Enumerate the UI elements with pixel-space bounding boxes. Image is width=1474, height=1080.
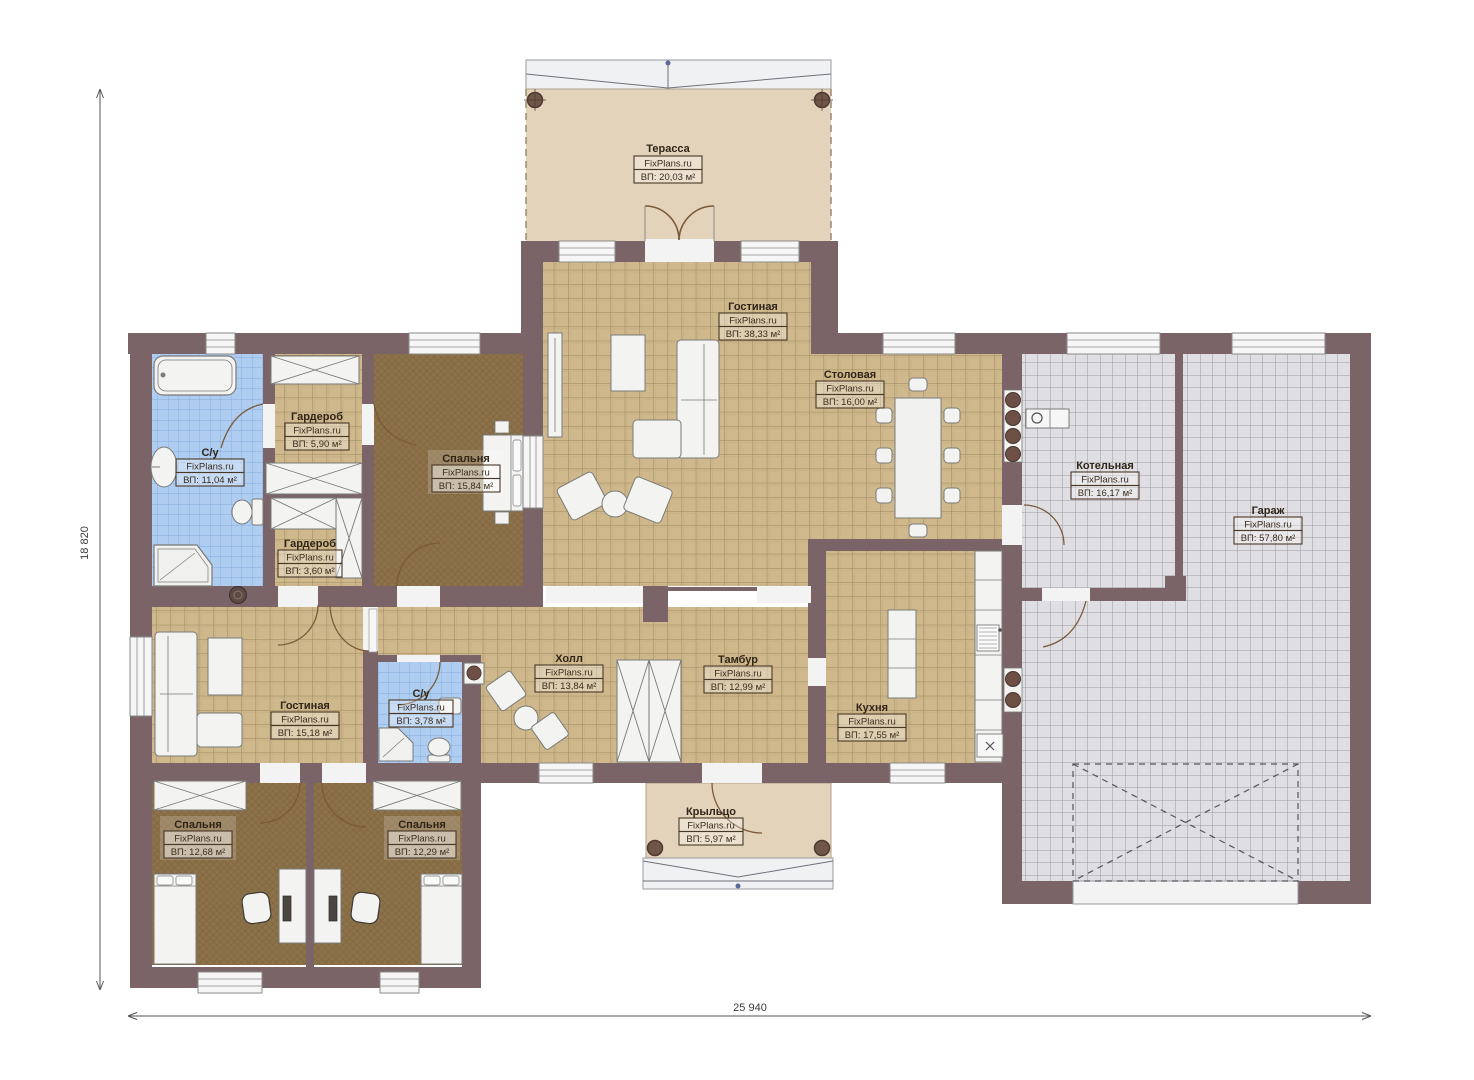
svg-text:Котельная: Котельная <box>1076 460 1134 472</box>
svg-text:FixPlans.ru: FixPlans.ru <box>644 159 692 170</box>
svg-text:ВП: 11,04 м²: ВП: 11,04 м² <box>183 475 237 486</box>
svg-text:FixPlans.ru: FixPlans.ru <box>1081 475 1129 486</box>
svg-text:ВП: 13,84 м²: ВП: 13,84 м² <box>542 681 597 692</box>
svg-text:FixPlans.ru: FixPlans.ru <box>398 834 446 845</box>
svg-text:ВП: 57,80 м²: ВП: 57,80 м² <box>1241 533 1296 544</box>
svg-text:Крыльцо: Крыльцо <box>686 806 736 818</box>
svg-text:FixPlans.ru: FixPlans.ru <box>397 703 445 714</box>
svg-text:ВП: 5,97 м²: ВП: 5,97 м² <box>686 834 735 845</box>
svg-text:Терасса: Терасса <box>646 143 690 155</box>
svg-text:25 940: 25 940 <box>733 1002 767 1014</box>
svg-text:Спальня: Спальня <box>174 819 222 831</box>
svg-text:18 820: 18 820 <box>79 526 91 560</box>
svg-text:FixPlans.ru: FixPlans.ru <box>545 668 593 679</box>
svg-text:FixPlans.ru: FixPlans.ru <box>729 316 777 327</box>
svg-text:Спальня: Спальня <box>398 819 446 831</box>
svg-text:FixPlans.ru: FixPlans.ru <box>293 426 341 437</box>
svg-text:ВП: 3,60 м²: ВП: 3,60 м² <box>285 566 334 577</box>
svg-text:FixPlans.ru: FixPlans.ru <box>826 384 874 395</box>
svg-text:FixPlans.ru: FixPlans.ru <box>1244 520 1292 531</box>
svg-text:Гостиная: Гостиная <box>728 301 778 313</box>
svg-text:FixPlans.ru: FixPlans.ru <box>186 462 234 473</box>
svg-text:FixPlans.ru: FixPlans.ru <box>848 717 896 728</box>
svg-text:Столовая: Столовая <box>824 369 876 381</box>
svg-text:Холл: Холл <box>555 653 583 665</box>
svg-text:ВП: 12,68 м²: ВП: 12,68 м² <box>171 847 226 858</box>
svg-text:ВП: 12,99 м²: ВП: 12,99 м² <box>711 682 766 693</box>
svg-text:FixPlans.ru: FixPlans.ru <box>286 553 334 564</box>
svg-text:С/у: С/у <box>412 688 430 700</box>
svg-text:FixPlans.ru: FixPlans.ru <box>687 821 735 832</box>
svg-text:ВП: 5,90 м²: ВП: 5,90 м² <box>292 439 341 450</box>
svg-text:ВП: 3,78 м²: ВП: 3,78 м² <box>396 716 445 727</box>
svg-text:FixPlans.ru: FixPlans.ru <box>442 468 490 479</box>
svg-text:ВП: 16,00 м²: ВП: 16,00 м² <box>823 397 878 408</box>
svg-text:Кухня: Кухня <box>856 702 888 714</box>
svg-text:Гардероб: Гардероб <box>284 538 336 550</box>
svg-text:ВП: 15,84 м²: ВП: 15,84 м² <box>439 481 494 492</box>
svg-text:FixPlans.ru: FixPlans.ru <box>281 715 329 726</box>
svg-text:ВП: 12,29 м²: ВП: 12,29 м² <box>395 847 450 858</box>
svg-text:Гостиная: Гостиная <box>280 700 330 712</box>
svg-text:FixPlans.ru: FixPlans.ru <box>714 669 762 680</box>
svg-text:Гардероб: Гардероб <box>291 411 343 423</box>
svg-text:ВП: 20,03 м²: ВП: 20,03 м² <box>641 172 696 183</box>
svg-text:ВП: 38,33 м²: ВП: 38,33 м² <box>726 329 781 340</box>
svg-text:Тамбур: Тамбур <box>718 654 758 666</box>
svg-text:FixPlans.ru: FixPlans.ru <box>174 834 222 845</box>
svg-text:ВП: 17,55 м²: ВП: 17,55 м² <box>845 730 900 741</box>
svg-text:Гараж: Гараж <box>1252 505 1285 517</box>
svg-text:ВП: 15,18 м²: ВП: 15,18 м² <box>278 728 333 739</box>
svg-text:Спальня: Спальня <box>442 453 490 465</box>
svg-text:ВП: 16,17 м²: ВП: 16,17 м² <box>1078 488 1133 499</box>
svg-text:С/у: С/у <box>201 447 219 459</box>
